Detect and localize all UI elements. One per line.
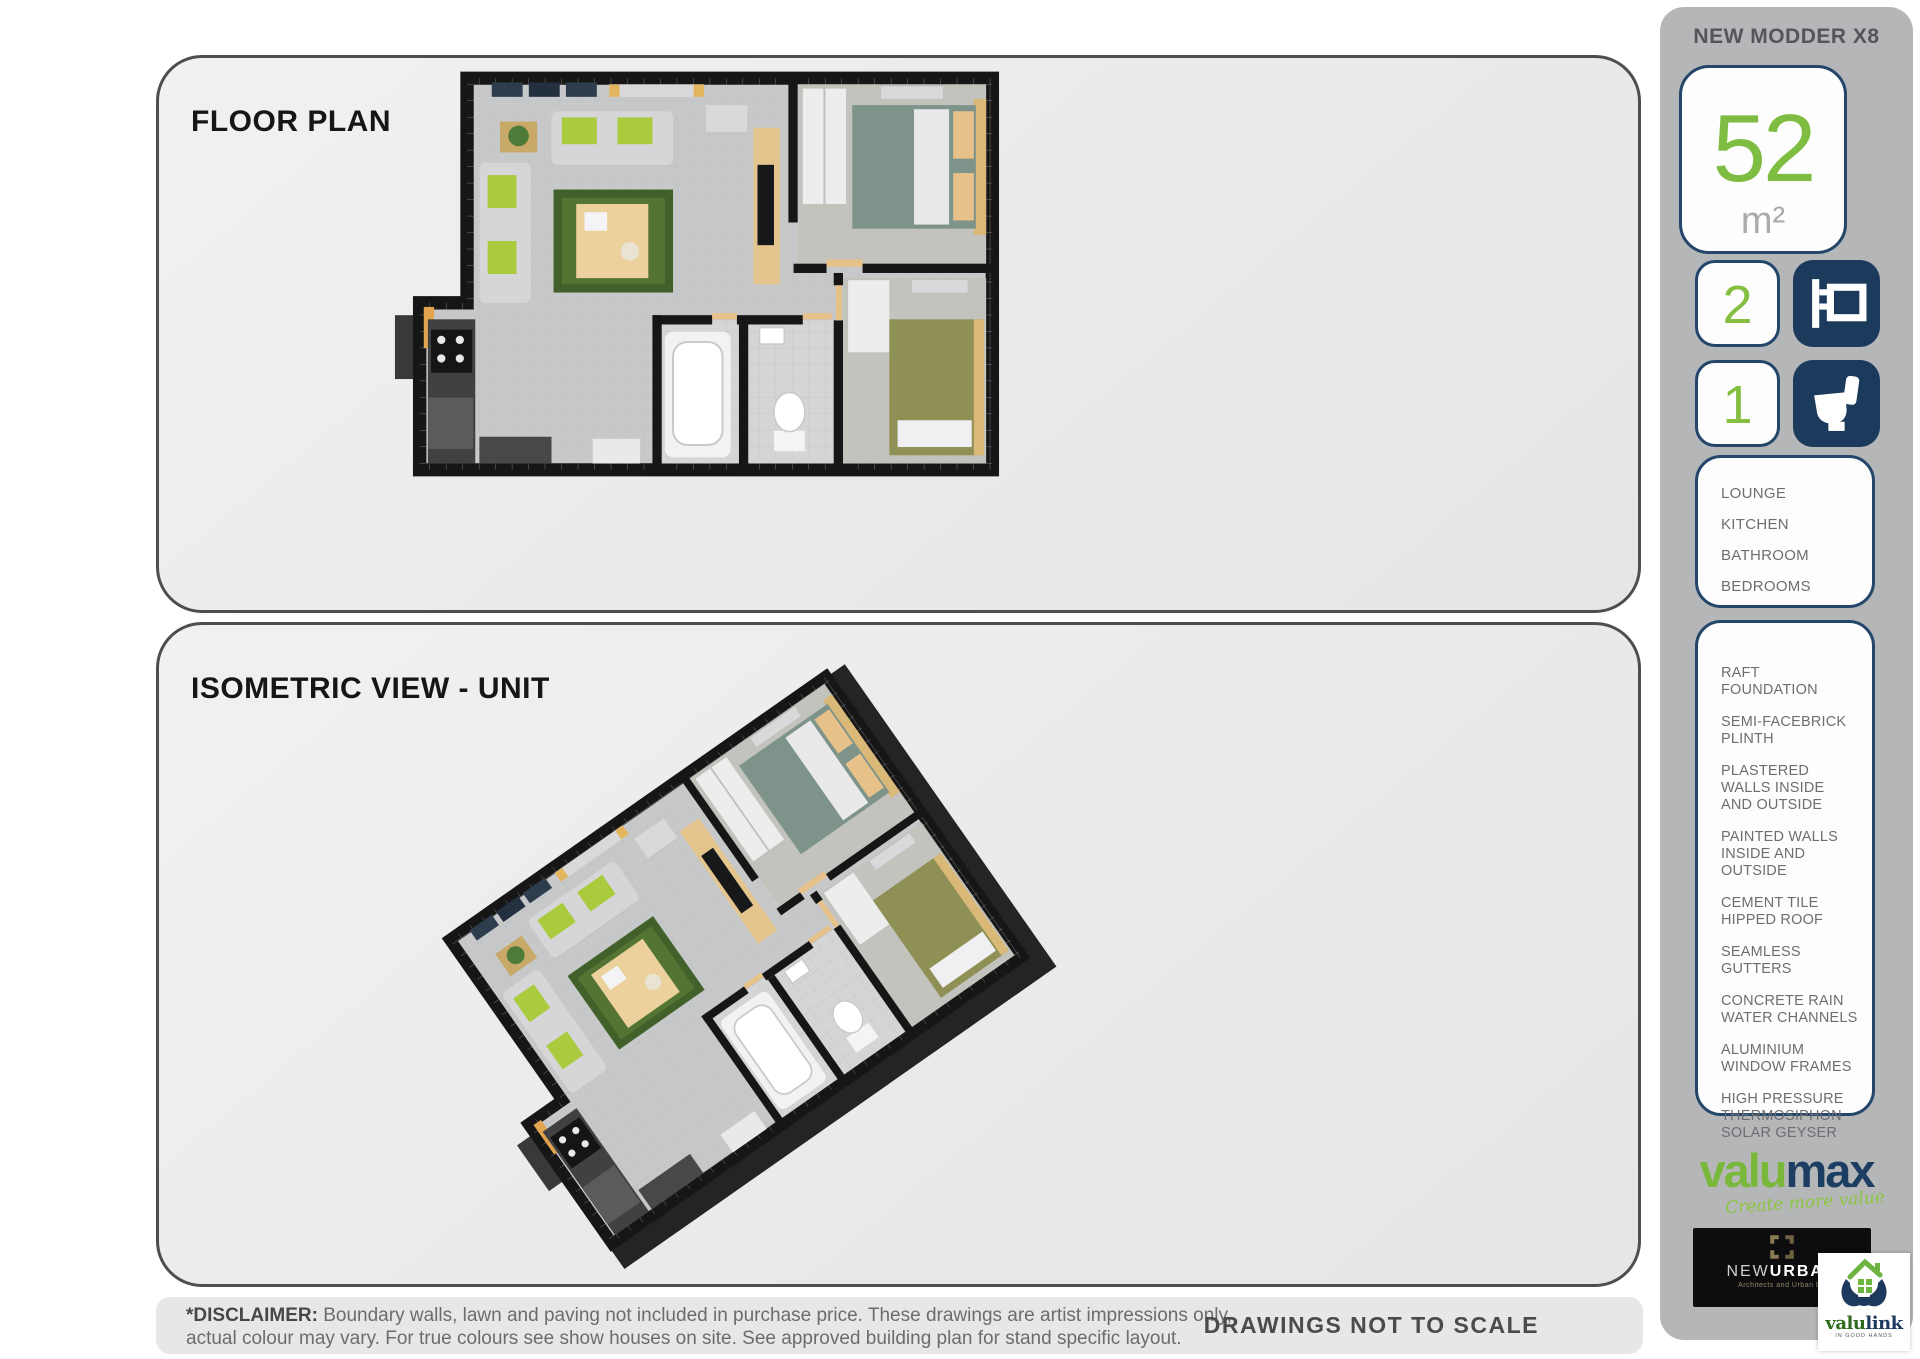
feature-item: CONCRETE RAIN WATER CHANNELS (1721, 993, 1858, 1027)
valulink-wordmark: valulink (1818, 1316, 1910, 1332)
valumax-logo: valumax Create more value (1660, 1149, 1913, 1215)
footer-bar: *DISCLAIMER: Boundary walls, lawn and pa… (156, 1297, 1643, 1354)
model-name: NEW MODDER X8 (1660, 25, 1913, 49)
room-item: BEDROOMS (1721, 578, 1872, 595)
feature-item: ALUMINIUM WINDOW FRAMES (1721, 1042, 1858, 1076)
disclaimer-label: *DISCLAIMER: (186, 1305, 318, 1326)
bedroom-count-box: 2 (1695, 260, 1780, 347)
spec-sidebar: NEW MODDER X8 52 m² 2 1 LOUNGEKITCHENBAT… (1660, 7, 1913, 1340)
feature-item: PLASTERED WALLS INSIDE AND OUTSIDE (1721, 763, 1858, 814)
disclaimer-text: *DISCLAIMER: Boundary walls, lawn and pa… (186, 1304, 1232, 1350)
feature-item: SEAMLESS GUTTERS (1721, 944, 1858, 978)
bathroom-count-box: 1 (1695, 360, 1780, 447)
floor-plan-rendering (159, 58, 1638, 609)
valulink-logo: valulink IN GOOD HANDS (1818, 1253, 1910, 1351)
disclaimer-line2: actual colour may vary. For true colours… (186, 1327, 1232, 1350)
feature-item: CEMENT TILE HIPPED ROOF (1721, 895, 1858, 929)
rooms-list-box: LOUNGEKITCHENBATHROOMBEDROOMS (1695, 455, 1875, 608)
feature-item: RAFT FOUNDATION (1721, 665, 1858, 699)
rooms-list: LOUNGEKITCHENBATHROOMBEDROOMS (1721, 485, 1872, 595)
feature-item: SEMI-FACEBRICK PLINTH (1721, 714, 1858, 748)
room-item: KITCHEN (1721, 516, 1872, 533)
floor-area-value: 52 (1682, 94, 1844, 204)
floor-area-unit: m² (1682, 200, 1844, 243)
isometric-rendering (159, 625, 1638, 1283)
floor-plan-panel: FLOOR PLAN (156, 55, 1641, 613)
room-item: LOUNGE (1721, 485, 1872, 502)
bedroom-icon-box (1793, 260, 1880, 347)
brochure-page: { "panels": { "floor_plan_title": "FLOOR… (0, 0, 1920, 1359)
scale-note: DRAWINGS NOT TO SCALE (1204, 1312, 1539, 1339)
bathroom-icon-box (1793, 360, 1880, 447)
feature-item: HIGH PRESSURE THERMOSIPHON SOLAR GEYSER (1721, 1091, 1858, 1142)
isometric-view-panel: ISOMETRIC VIEW - UNIT (156, 622, 1641, 1287)
toilet-icon (1804, 371, 1869, 436)
newurban-icon (1769, 1234, 1795, 1260)
bathroom-count: 1 (1698, 374, 1777, 436)
features-list-box: RAFT FOUNDATIONSEMI-FACEBRICK PLINTHPLAS… (1695, 620, 1875, 1116)
bed-icon (1804, 271, 1869, 336)
valulink-icon (1832, 1253, 1896, 1311)
floor-area-box: 52 m² (1679, 65, 1847, 254)
features-list: RAFT FOUNDATIONSEMI-FACEBRICK PLINTHPLAS… (1721, 665, 1858, 1142)
bedroom-count: 2 (1698, 274, 1777, 336)
disclaimer-line1: *DISCLAIMER: Boundary walls, lawn and pa… (186, 1304, 1232, 1327)
feature-item: PAINTED WALLS INSIDE AND OUTSIDE (1721, 829, 1858, 880)
room-item: BATHROOM (1721, 547, 1872, 564)
